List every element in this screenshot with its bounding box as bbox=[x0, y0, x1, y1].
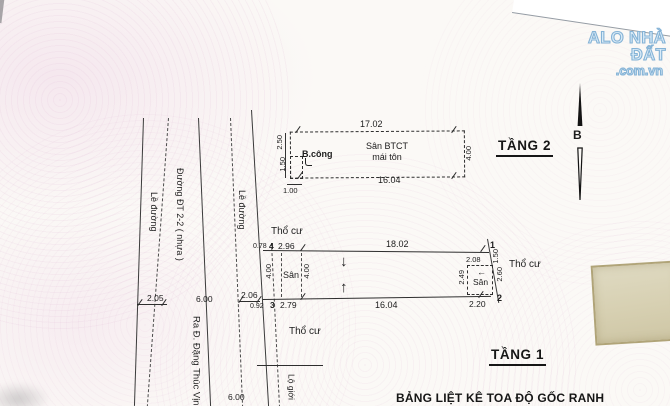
road-shoulder-right-label: Lề đường bbox=[237, 190, 246, 229]
floor2-room-label-line2: mái tôn bbox=[354, 153, 420, 162]
north-arrow-icon bbox=[571, 82, 589, 204]
yard-right-arrow: ← bbox=[477, 268, 486, 277]
road-direction-label: Ra Đ. Đặng Thúc Vịnh bbox=[191, 316, 201, 406]
balcony-leader-line bbox=[305, 158, 312, 166]
road-shoulder-left-label: Lề đường bbox=[149, 192, 158, 231]
dim-parcel-top: 18.02 bbox=[386, 240, 409, 249]
yard-right-label: Sân bbox=[473, 278, 488, 287]
yard-right-dim-side: 2.49 bbox=[458, 270, 466, 285]
dim-line bbox=[287, 184, 302, 185]
floor2-dim-balcony-width: 1.00 bbox=[283, 187, 298, 195]
dim-road-width-upper: 6.00 bbox=[196, 295, 213, 304]
road-shoulder-line-inner bbox=[230, 118, 243, 406]
parcel-top-edge bbox=[263, 250, 489, 253]
land-label-bottom: Thổ cư bbox=[289, 327, 321, 337]
pink-wash bbox=[0, 0, 320, 220]
watermark-pattern bbox=[150, 150, 580, 406]
watermark-pattern bbox=[0, 0, 290, 330]
dim-top-front: 2.96 bbox=[278, 242, 295, 251]
dim-top-offset: 0.78 bbox=[253, 243, 267, 250]
scan-smudge bbox=[0, 382, 50, 406]
yard-left-divider-a bbox=[281, 253, 282, 297]
covered-area-patch bbox=[591, 260, 670, 345]
road-shoulder-line-outer bbox=[134, 118, 144, 406]
entrance-arrow-up: ↑ bbox=[340, 280, 348, 295]
dim-right-upper: 1.50 bbox=[492, 249, 500, 264]
dim-right-lower: 2.60 bbox=[496, 267, 504, 282]
boundary-tick-line bbox=[257, 365, 323, 366]
yard-right-dim-top: 2.08 bbox=[466, 256, 481, 264]
yard-left-label: Sân bbox=[283, 271, 299, 280]
site-logo-domain: .com.vn bbox=[550, 65, 666, 78]
floor1-title: TẦNG 1 bbox=[489, 347, 546, 366]
road-boundary-label: Lộ giới bbox=[287, 374, 296, 400]
coordinate-table-title: BẢNG LIỆT KÊ TOA ĐỘ GỐC RANH bbox=[396, 392, 604, 404]
parcel-frontage-line bbox=[251, 110, 269, 406]
floor2-dim-left-upper: 2.50 bbox=[276, 135, 284, 150]
entrance-arrow-down: ↓ bbox=[340, 254, 348, 269]
dim-bottom-offset: 0.92 bbox=[250, 303, 264, 310]
pink-wash bbox=[0, 200, 260, 406]
dim-road-width-lower: 6.00 bbox=[228, 393, 245, 402]
road-centerline bbox=[147, 118, 169, 406]
floor2-dim-top: 17.02 bbox=[360, 120, 383, 129]
north-label: B bbox=[573, 129, 582, 141]
site-logo: ALO NHÀ ĐẤT .com.vn bbox=[550, 30, 666, 78]
floor2-dim-right: 4.00 bbox=[465, 146, 473, 161]
floor2-dim-left-lower: 1.50 bbox=[279, 157, 287, 172]
floor2-balcony-outline bbox=[290, 156, 303, 179]
dim-road-right-strip: 2.06 bbox=[241, 291, 258, 300]
land-label-right: Thổ cư bbox=[509, 260, 541, 270]
corner-marker-4: 4 bbox=[269, 242, 274, 251]
survey-drawing-scan: ALO NHÀ ĐẤT .com.vn B Lề đường Đường ĐT … bbox=[0, 0, 670, 406]
land-label-top: Thổ cư bbox=[271, 227, 303, 237]
corner-marker-2: 2 bbox=[497, 294, 502, 303]
yard-left-dim-left: 4.00 bbox=[265, 264, 273, 279]
scan-edge-mark bbox=[0, 0, 5, 23]
floor2-room-label-line1: Sân BTCT bbox=[352, 142, 422, 151]
corner-marker-3: 3 bbox=[270, 301, 275, 310]
floor2-title: TẦNG 2 bbox=[496, 138, 553, 157]
road-name-label: Đường ĐT 2-2 ( nhựa ) bbox=[175, 168, 184, 261]
dim-road-shoulder: 2.05 bbox=[147, 294, 164, 303]
yard-left-dim-right: 4.00 bbox=[303, 264, 311, 279]
floor2-dim-bottom: 16.04 bbox=[378, 176, 401, 185]
dim-parcel-bottom: 16.04 bbox=[375, 301, 398, 310]
site-logo-title: ALO NHÀ ĐẤT bbox=[550, 30, 666, 65]
dim-yard-right-bottom: 2.20 bbox=[469, 300, 486, 309]
dim-bottom-front: 2.79 bbox=[280, 301, 297, 310]
